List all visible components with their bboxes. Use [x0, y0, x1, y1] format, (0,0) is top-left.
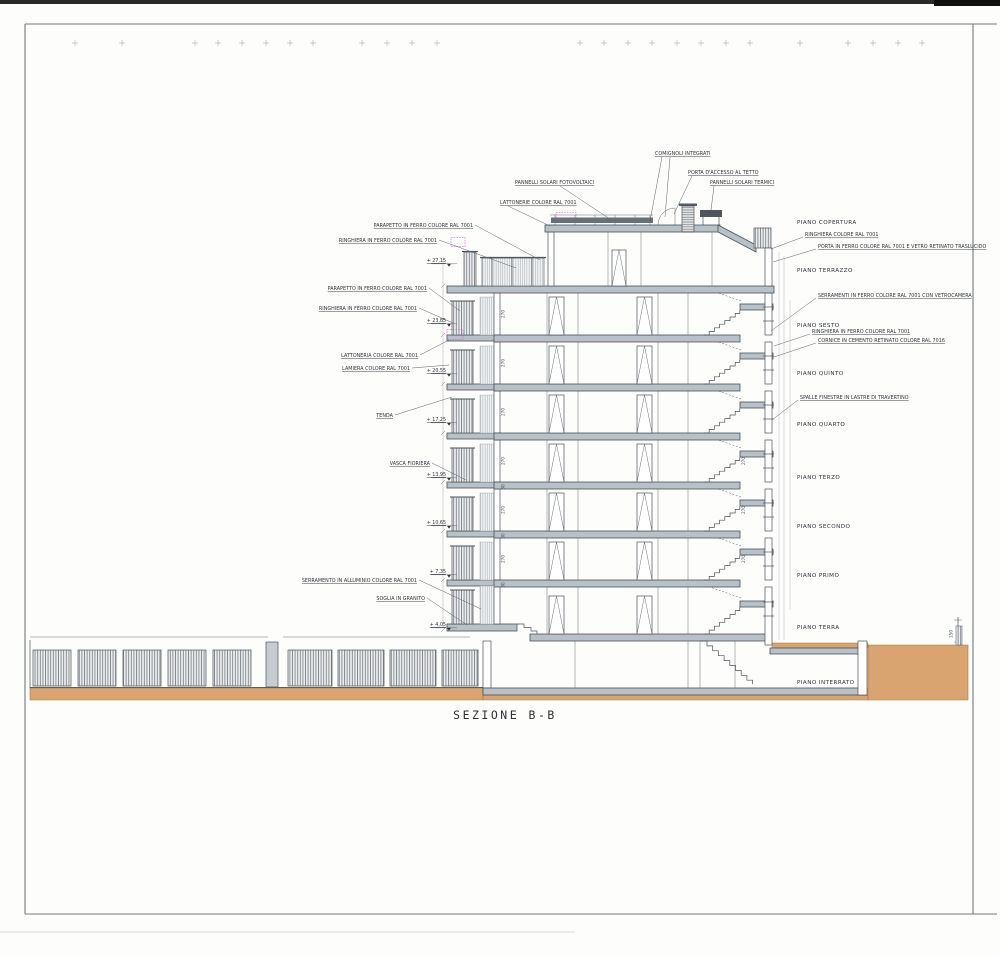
dim-text: 270 [501, 310, 506, 318]
annotation: PARAPETTO IN FERRO COLORE RAL 7001 [374, 223, 473, 229]
registration-marks [72, 40, 925, 46]
annotation: SERRAMENTI IN FERRO COLORE RAL 7001 CON … [818, 293, 972, 299]
annotation: LATTONERIE COLORE RAL 7001 [500, 200, 577, 206]
entry-steps [517, 624, 537, 634]
annotation: SOGLIA IN GRANITO [376, 596, 425, 602]
section-drawing: PIANO COPERTURA PIANO TERRAZZO PIANO SES… [0, 0, 1000, 957]
solar-thermal-panel [700, 210, 722, 217]
annotation: PANNELLI SOLARI TERMICI [710, 180, 774, 186]
drawing-title: SEZIONE B-B [453, 708, 557, 722]
annotation: PARAPETTO IN FERRO COLORE RAL 7001 [328, 286, 427, 292]
floor-label-terzo: PIANO TERZO [797, 475, 840, 481]
annotation: VASCA FIORIERA [390, 461, 431, 467]
elevation: + 10,65 [427, 520, 446, 526]
fence-pillar [266, 642, 278, 687]
earth-under-building [483, 695, 868, 700]
penthouse-roof [447, 204, 774, 294]
annotation: CORNICE IN CEMENTO RETINATO COLORE RAL 7… [818, 338, 945, 344]
floor-label-quinto: PIANO QUINTO [797, 371, 844, 377]
floor-labels: PIANO COPERTURA PIANO TERRAZZO PIANO SES… [797, 220, 857, 686]
roof-parapet [754, 228, 771, 248]
annotation: SERRAMENTO IN ALLUMINIO COLORE RAL 7001 [302, 578, 417, 584]
drawing-sheet: PIANO COPERTURA PIANO TERRAZZO PIANO SES… [0, 0, 1000, 957]
elevation: + 27,15 [427, 258, 446, 264]
ground-level-marker [954, 617, 962, 645]
basement [483, 641, 867, 695]
annotation: PORTA D'ACCESSO AL TETTO [688, 170, 759, 176]
dim-text: 270 [501, 408, 506, 416]
dim-text: 270 [501, 457, 506, 465]
annotation: RINGHIERA IN FERRO COLORE RAL 7001 [812, 329, 910, 335]
elevation: + 4,05 [430, 622, 446, 628]
terrace-railing [482, 258, 544, 286]
building-section [441, 204, 962, 696]
dim-text: 270 [501, 506, 506, 514]
annotations-top: COMIGNOLI INTEGRATI PORTA D'ACCESSO AL T… [500, 151, 774, 226]
dim-text: 30 [501, 484, 506, 490]
dim-text: 150 [949, 630, 954, 638]
floor-label-terra: PIANO TERRA [797, 625, 840, 631]
annotation: RINGHIERA IN FERRO COLORE RAL 7001 [319, 306, 417, 312]
garage-door-panels [33, 642, 478, 687]
annotation: RINGHIERA IN FERRO COLORE RAL 7001 [339, 238, 437, 244]
dim-text: 30 [501, 582, 506, 588]
annotation: RINGHIERA COLORE RAL 7001 [805, 232, 878, 238]
floor-label-quarto: PIANO QUARTO [797, 422, 845, 428]
roof-door-swing [658, 208, 675, 225]
annotation: TENDA [375, 413, 393, 419]
dim-text: 270 [741, 457, 746, 465]
annotation: LATTONERIA COLORE RAL 7001 [341, 353, 418, 359]
dim-text: 270 [741, 506, 746, 514]
floor-label-terrazzo: PIANO TERRAZZO [797, 268, 853, 274]
floor-label-copertura: PIANO COPERTURA [797, 220, 857, 226]
floor-label-primo: PIANO PRIMO [797, 573, 839, 579]
elevation: + 17,25 [427, 417, 446, 423]
elevation: + 20,55 [427, 368, 446, 374]
dim-text: 30 [501, 533, 506, 539]
ground-floor [447, 586, 774, 645]
earth-right [868, 645, 968, 700]
annotation: SPALLE FINESTRE IN LASTRE DI TRAVERTINO [800, 395, 909, 401]
annotation: COMIGNOLI INTEGRATI [655, 151, 710, 157]
floor-label-sesto: PIANO SESTO [797, 323, 840, 329]
dim-text: 270 [741, 555, 746, 563]
floor-label-secondo: PIANO SECONDO [797, 524, 851, 530]
photovoltaic-panels [551, 218, 653, 224]
elevation: + 23,85 [427, 318, 446, 324]
annotation: LAMIERA COLORE RAL 7001 [342, 366, 410, 372]
earth-strip-over-basement [772, 643, 868, 648]
dim-text: 270 [501, 359, 506, 367]
scan-edge [0, 0, 1000, 6]
floor-label-interrato: PIANO INTERRATO [797, 680, 855, 686]
elevation: + 13,95 [427, 472, 446, 478]
earth-left [30, 688, 483, 700]
dim-text: 270 [501, 555, 506, 563]
dimension-labels: 270 270 270 270 270 270 30 30 30 270 270… [501, 310, 954, 638]
basement-stair [700, 641, 753, 684]
elevation: + 7,35 [430, 569, 446, 575]
chimney [682, 206, 694, 232]
annotation: PANNELLI SOLARI FOTOVOLTAICI [515, 180, 594, 186]
fence-garages [30, 637, 483, 688]
annotation: PORTA IN FERRO COLORE RAL 7001 E VETRO R… [818, 244, 986, 250]
roof-slope [718, 225, 756, 252]
